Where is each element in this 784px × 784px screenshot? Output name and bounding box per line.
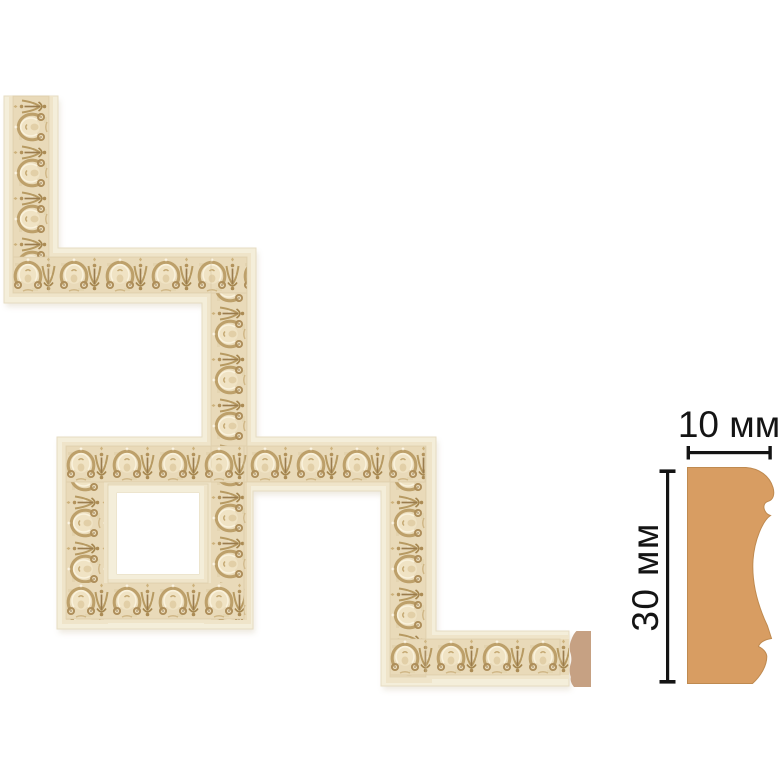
svg-text:10 мм: 10 мм: [678, 404, 780, 445]
svg-text:30 мм: 30 мм: [625, 522, 666, 631]
